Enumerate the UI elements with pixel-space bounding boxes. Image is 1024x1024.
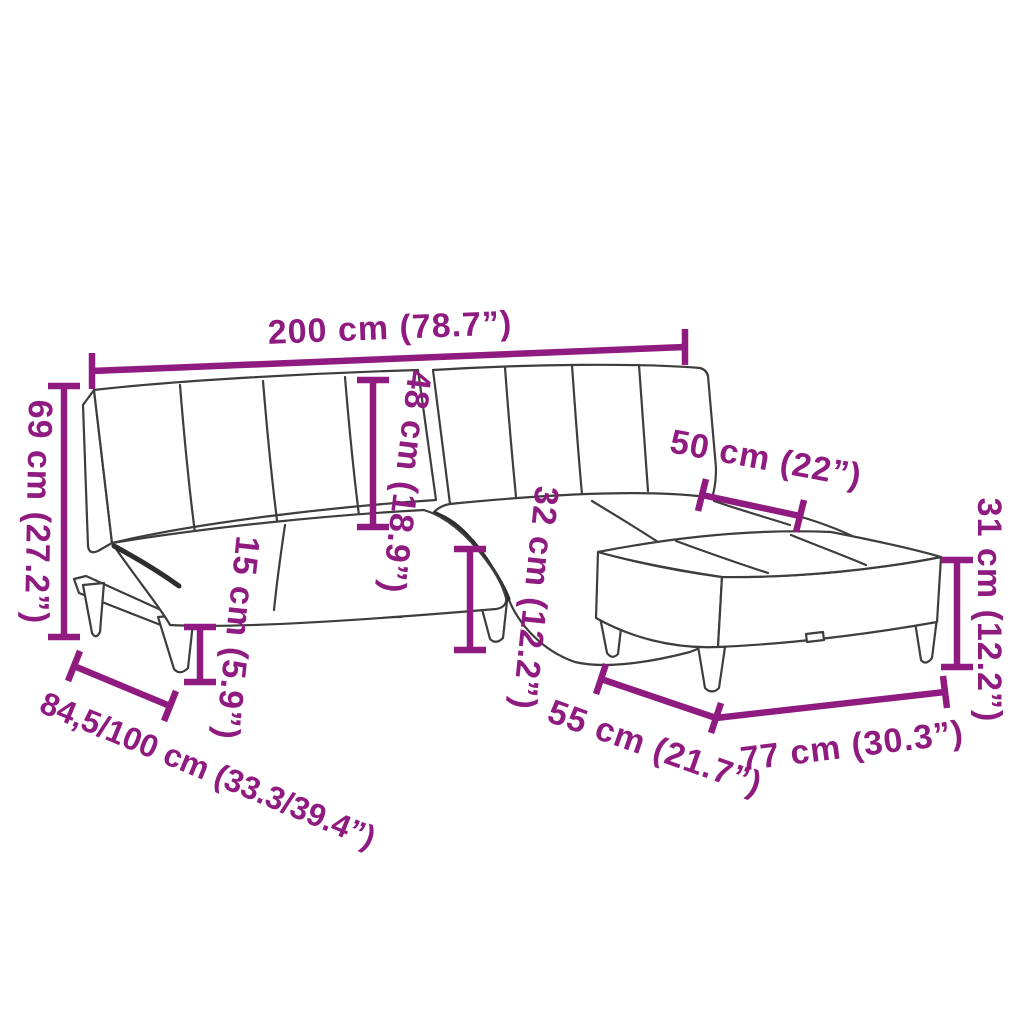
- diagram-canvas: 200 cm (78.7”) 69 cm (27.2”) 48 cm (18.9…: [0, 0, 1024, 1024]
- dim-footstool-height-label: 31 cm (12.2”): [970, 498, 1008, 723]
- dim-footstool-front: 55 cm (21.7”): [543, 664, 767, 803]
- dim-backrest-height-label: 69 cm (27.2”): [17, 399, 59, 624]
- dim-footstool-front-line: [601, 679, 716, 718]
- footstool-zipper-tab: [806, 632, 824, 642]
- dim-footstool-front-label: 55 cm (21.7”): [543, 693, 767, 804]
- dim-footstool-height: 31 cm (12.2”): [941, 498, 1008, 723]
- dim-footstool-width-tick-right: [943, 676, 947, 708]
- sofa-leg-back-left: [83, 583, 104, 636]
- dim-total-width-label: 200 cm (78.7”): [267, 304, 513, 352]
- dim-depth-range-label: 84,5/100 cm (33.3/39.4”): [35, 685, 381, 856]
- product-dimension-diagram: 200 cm (78.7”) 69 cm (27.2”) 48 cm (18.9…: [0, 0, 1024, 1024]
- dim-backrest-height: 69 cm (27.2”): [17, 386, 80, 637]
- dim-footstool-width: 77 cm (30.3”): [716, 676, 966, 779]
- footstool-leg-front: [698, 646, 725, 692]
- dim-footstool-width-line: [716, 692, 945, 718]
- dim-footstool-width-label: 77 cm (30.3”): [738, 713, 966, 778]
- footstool-drawing: [596, 531, 941, 691]
